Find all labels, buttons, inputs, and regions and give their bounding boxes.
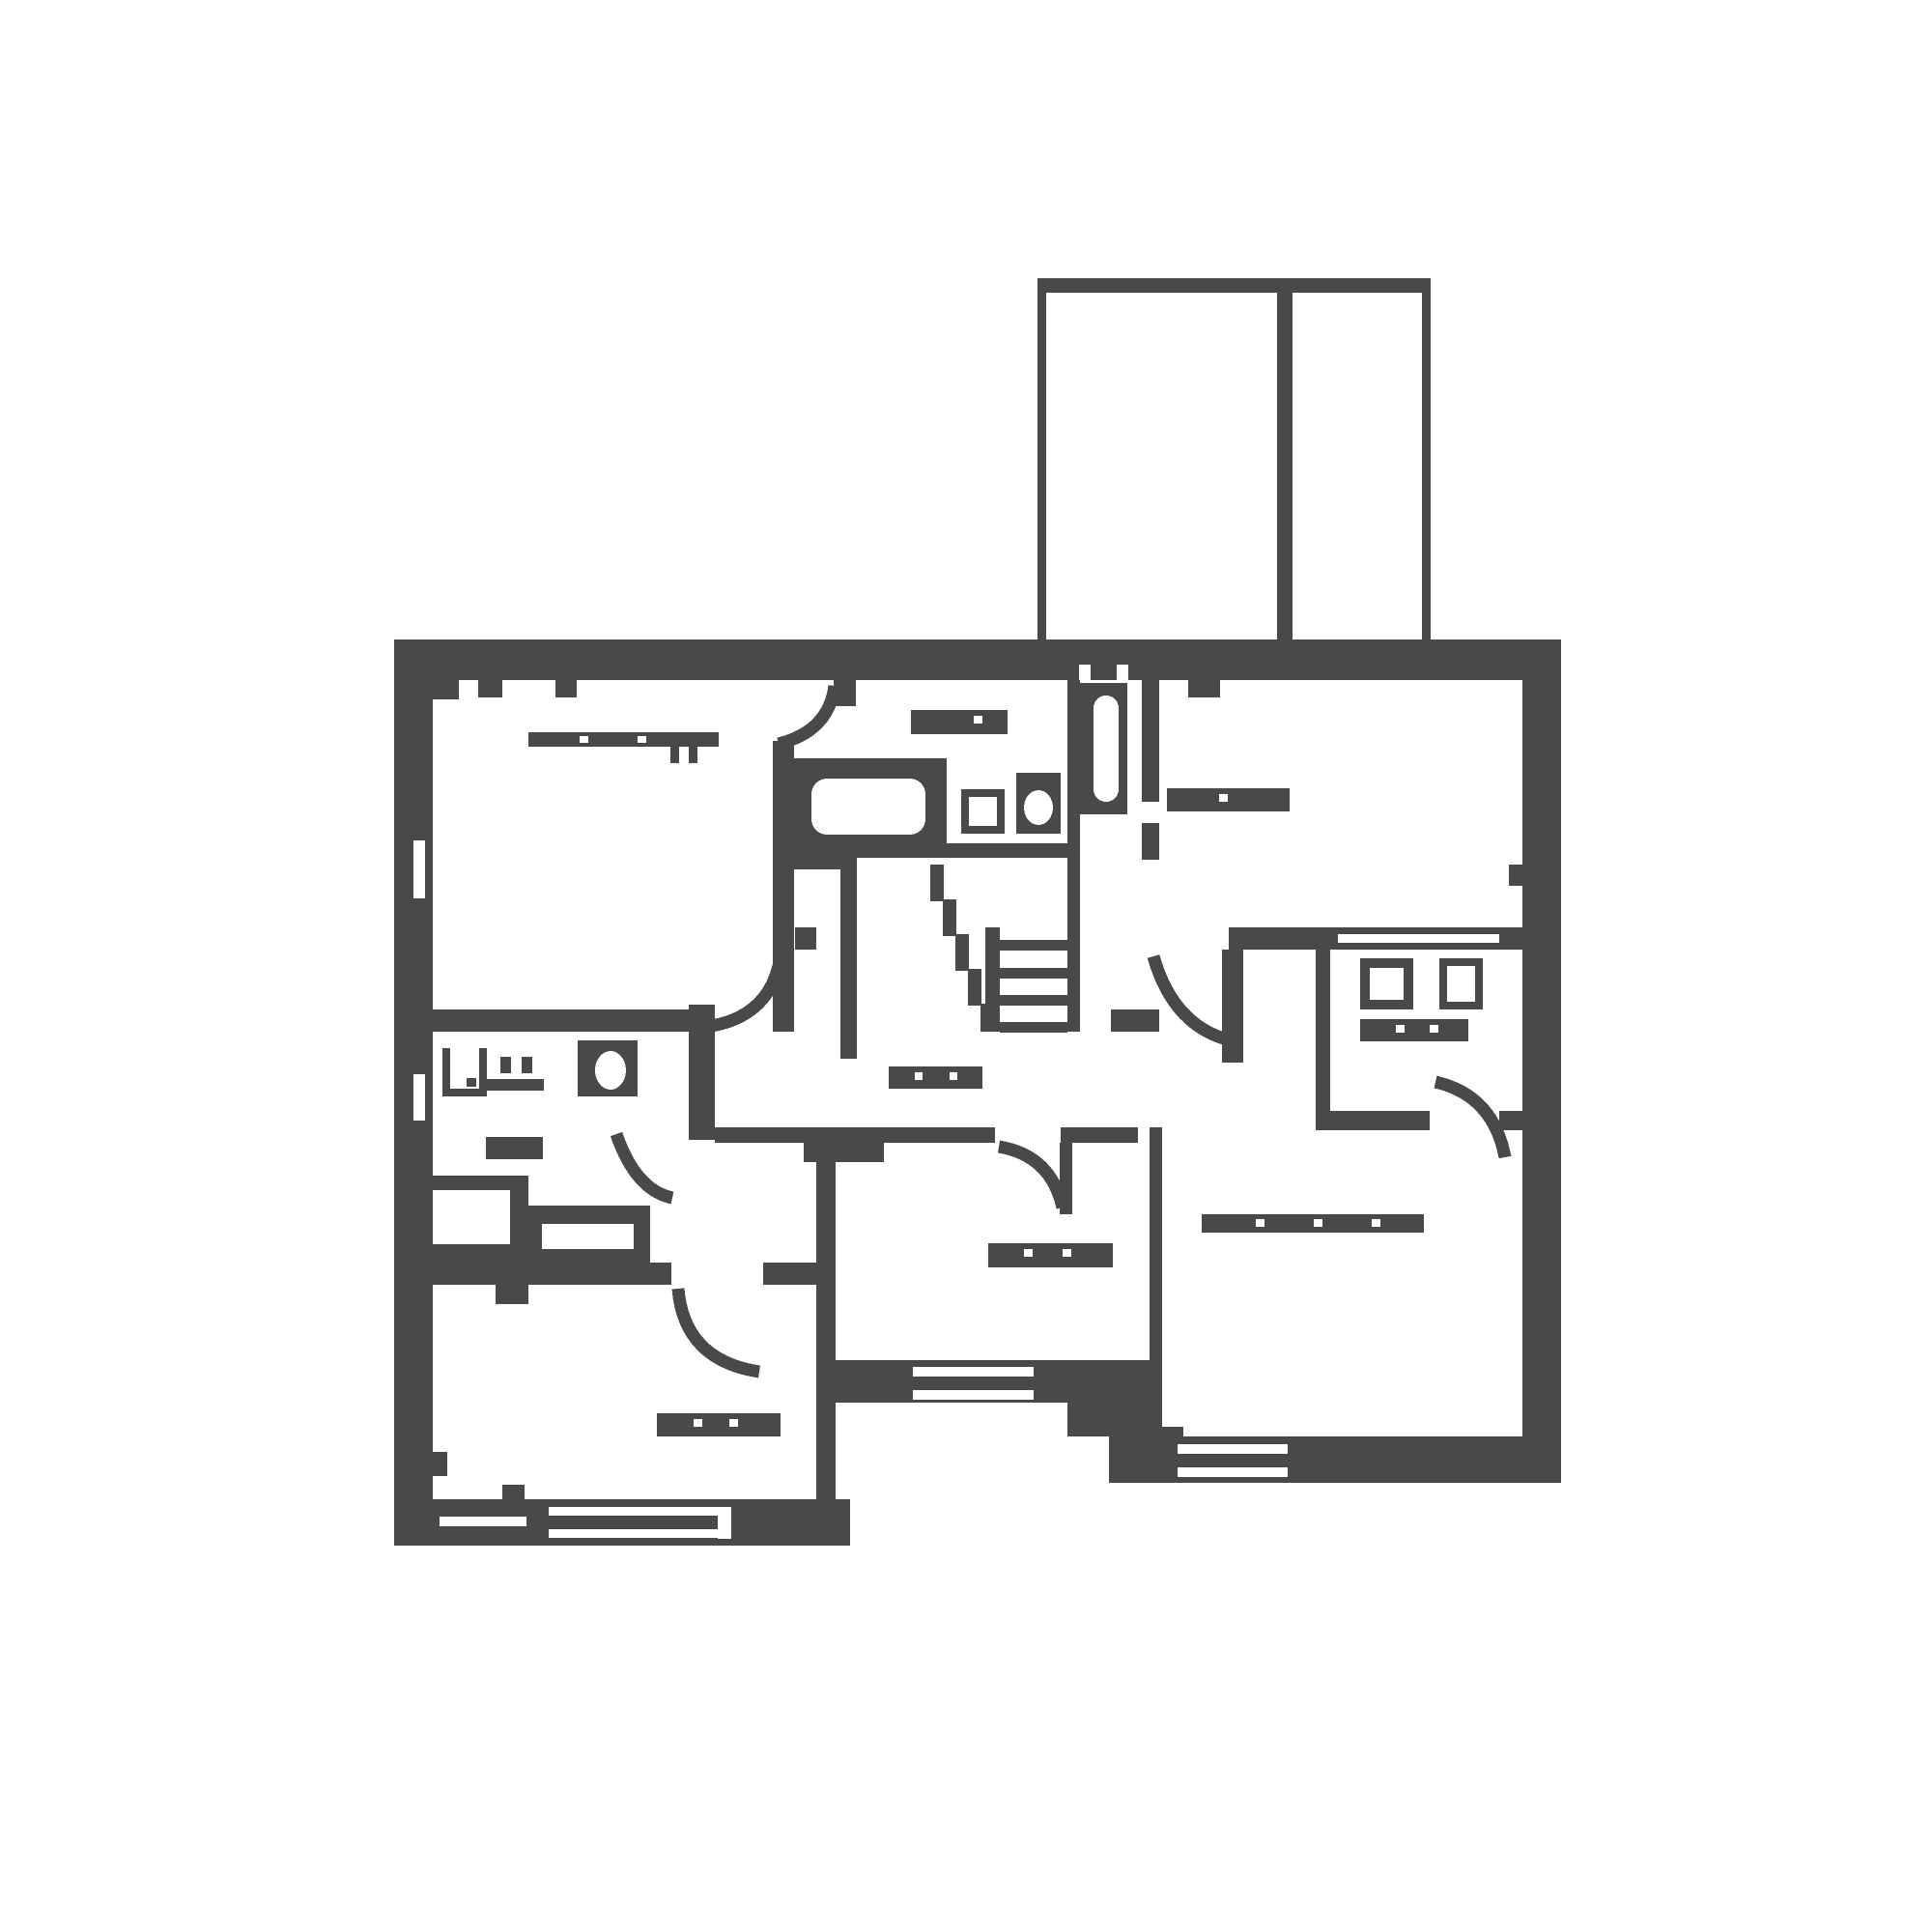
window-stub-bedroom1-b (555, 680, 577, 697)
bathtub-basin (811, 779, 925, 835)
outer-wall-top (394, 639, 1561, 680)
bedroom3-west-wall (1150, 1127, 1162, 1436)
outer-wall-right (1522, 639, 1561, 1483)
garage-opening-notch-a (1079, 665, 1091, 680)
window-right-bedroom3 (1514, 1265, 1522, 1357)
understair-step-1 (930, 865, 944, 901)
floor-plan-canvas (0, 0, 1932, 1932)
porch-connector-wall (1067, 1360, 1162, 1436)
window-stub-room4 (433, 1452, 447, 1476)
room4-door-stub (496, 1285, 528, 1304)
label-notch-bedroom3-b (1314, 1219, 1322, 1227)
label-bar-bedroom1-leg-b (689, 747, 697, 763)
washer-knob-a (500, 1057, 511, 1073)
garage-wall-right (1422, 278, 1431, 639)
porch-steps-living-slot-a (913, 1367, 1034, 1377)
bath2-west-wall (1316, 950, 1330, 1130)
porch-steps-bl-notch (718, 1507, 731, 1539)
bedroom3-doorstop (1161, 1427, 1183, 1436)
closet1-south-wall (433, 1244, 528, 1263)
label-notch-hall-b (950, 1072, 957, 1080)
understair-step-4 (968, 969, 981, 1006)
washer-knob-b (522, 1057, 532, 1073)
understair-step-2 (943, 899, 956, 936)
garage-door-leaf-capsule (1094, 696, 1119, 802)
stair-tread-2 (1000, 968, 1067, 979)
window-stub-bedroom1-a (478, 680, 502, 697)
bath1-south-wall (794, 843, 1079, 858)
bath2-sink-basin (1447, 966, 1475, 1002)
label-notch-bedroom3-c (1372, 1219, 1380, 1227)
closet2-shelf-block (795, 927, 816, 950)
bedroom2-door-gap (1142, 802, 1159, 823)
stair-tread-1 (1000, 940, 1067, 951)
garage-opening-notch-b (1117, 665, 1128, 680)
label-notch-hall-a (915, 1072, 923, 1080)
floor-plan-page (0, 0, 1932, 1932)
washer-bar (486, 1079, 544, 1091)
label-notch-room4-a (694, 1419, 702, 1427)
label-bar-laundry (486, 1137, 543, 1159)
door-arc-room4 (678, 1289, 759, 1372)
label-bar-living (988, 1243, 1113, 1267)
door-arc-bath1 (616, 1134, 672, 1198)
garage-wall-divider (1277, 278, 1293, 639)
stair-tread-4 (1000, 1022, 1067, 1033)
door-arc-living (999, 1147, 1063, 1207)
hall-south-wall-a (715, 1127, 995, 1143)
label-bar-hall (889, 1066, 982, 1089)
label-notch-living-a (1024, 1249, 1033, 1257)
bedroom3-door-hinge-wall (1222, 950, 1243, 1063)
understair-step-5 (980, 1004, 994, 1032)
doorstop-room4 (502, 1485, 525, 1499)
label-bar-room4 (657, 1413, 781, 1436)
porch-steps-br-slot-a (1178, 1444, 1288, 1454)
porch-steps-br-slot-b (1178, 1467, 1288, 1477)
hall-south-wall-b (1061, 1127, 1138, 1143)
label-notch-living-b (1063, 1249, 1071, 1257)
window-right-bedroom2 (1514, 749, 1522, 860)
window-bottom-room4 (440, 1517, 526, 1526)
label-bar-bedroom1 (528, 732, 719, 747)
wall-stub-top-left-corner (433, 680, 459, 699)
bath2-door-hinge (1499, 1111, 1522, 1130)
laundry-sink-faucet-dot (467, 1078, 476, 1087)
window-left-laundry (413, 1074, 425, 1121)
label-bar-bedroom1-leg-a (670, 747, 679, 763)
bath1-toilet-bowl (1024, 790, 1053, 825)
label-bar-bedroom2 (1167, 788, 1290, 811)
label-notch-bedroom1-a (580, 736, 588, 743)
label-notch-bath2-a (1396, 1025, 1405, 1033)
outer-wall-bottom-right (1109, 1436, 1561, 1483)
laundry-toilet-bowl (595, 1051, 626, 1090)
porch-steps-living-slot-b (913, 1390, 1034, 1400)
bath2-toilet-basin (1370, 968, 1404, 1000)
garage-wall-top (1037, 278, 1430, 293)
understair-step-3 (955, 934, 969, 971)
stair-tread-3 (1000, 995, 1067, 1006)
label-bar-bath1 (911, 710, 1008, 734)
door-arc-bedroom1 (779, 686, 835, 744)
label-notch-bedroom2 (1219, 794, 1228, 802)
garage-wall-left (1037, 278, 1046, 639)
label-notch-bedroom3-a (1256, 1219, 1264, 1227)
label-notch-bath1 (974, 716, 982, 724)
room4-east-wall (816, 1143, 836, 1499)
closet2-east-wall (840, 857, 857, 1059)
door-arc-bath2 (1435, 1082, 1505, 1157)
door-arc-bedroom3 (1153, 956, 1227, 1039)
bedroom2-west-wall (1142, 680, 1159, 860)
room4-north-wall-a (394, 1263, 671, 1285)
hall-threshold-bar (804, 1143, 884, 1162)
porch-steps-bl-slot-a (549, 1507, 718, 1516)
window-left-bedroom1 (413, 840, 425, 898)
bench-seat (542, 1224, 634, 1249)
bath2-south-wall (1330, 1111, 1430, 1130)
bedroom1-south-wall (433, 1009, 693, 1032)
stairs-newel-bar (1111, 1009, 1159, 1032)
label-bar-bath2 (1360, 1019, 1468, 1041)
window-stub-bedroom2-end (1509, 865, 1522, 886)
porch-steps-bl-slot-b (549, 1529, 718, 1538)
label-notch-bath2-b (1430, 1025, 1438, 1033)
window-stub-bedroom2 (1188, 680, 1220, 697)
bedroom2-wall-slot (1338, 934, 1499, 943)
bath1-sink-basin (969, 797, 997, 826)
label-notch-bedroom1-b (638, 736, 646, 743)
label-bar-bedroom3 (1202, 1214, 1424, 1233)
label-notch-room4-b (729, 1419, 738, 1427)
